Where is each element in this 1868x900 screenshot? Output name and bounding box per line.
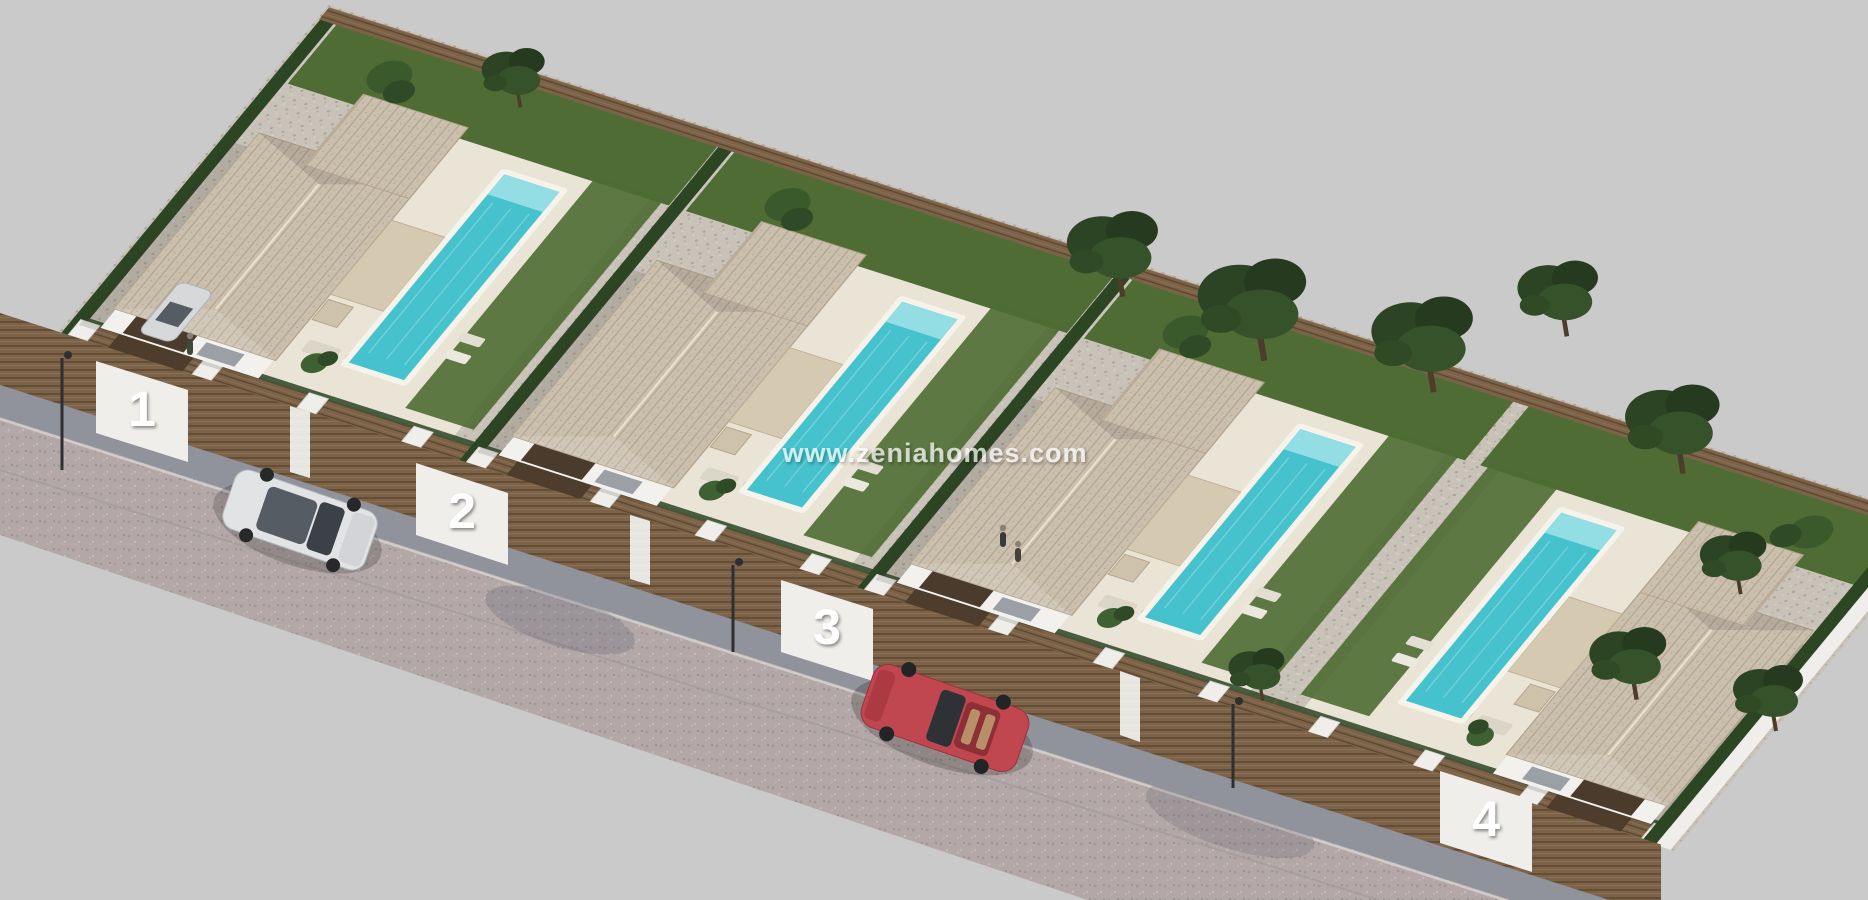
villa-number-label-1: 1 <box>128 381 156 437</box>
fence-pillar <box>630 515 650 585</box>
fence-pillar <box>290 406 310 478</box>
villa-number-label-3: 3 <box>813 599 841 655</box>
watermark-text: www.zeniahomes.com <box>781 438 1087 468</box>
aerial-render-scene: 1 2 3 4 www.zeniahomes.com <box>0 0 1868 900</box>
person-figure <box>1000 525 1006 547</box>
render-canvas: 1 2 3 4 www.zeniahomes.com <box>0 0 1868 900</box>
person-figure <box>1015 541 1021 562</box>
fence-pillar <box>1120 671 1140 742</box>
villa-number-label-4: 4 <box>1472 791 1500 847</box>
person-figure <box>187 333 193 355</box>
villa-number-label-2: 2 <box>448 483 476 539</box>
